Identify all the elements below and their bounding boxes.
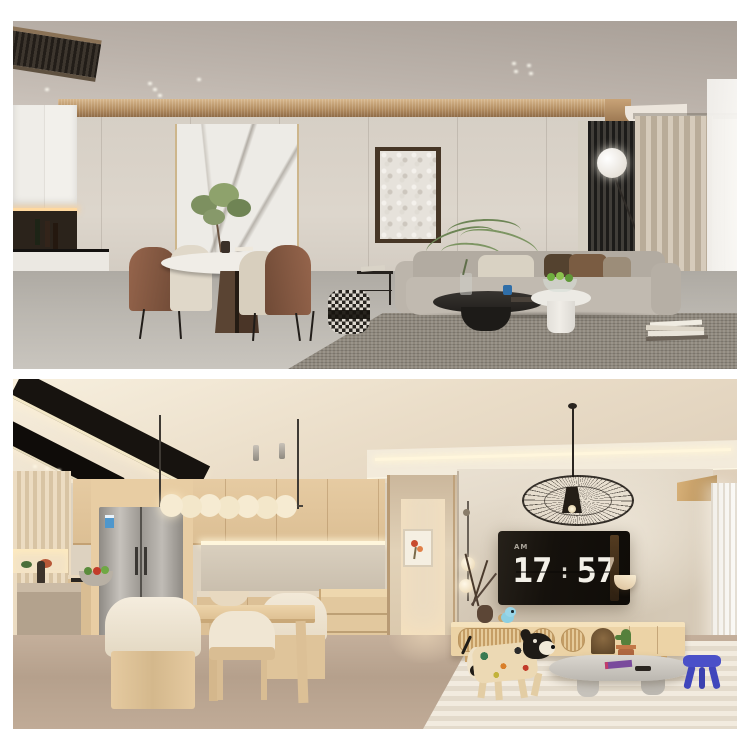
glass-vase <box>460 273 472 295</box>
hallway-art <box>403 529 433 567</box>
mini-downlight <box>253 445 259 461</box>
mini-downlight <box>279 443 285 459</box>
stool-leg <box>708 665 721 690</box>
toy-dog <box>461 631 563 701</box>
blue-cup <box>503 285 512 295</box>
wood-cornice <box>58 99 608 117</box>
console-door-seam <box>657 626 658 654</box>
veggies <box>84 567 92 575</box>
table-books <box>235 247 253 252</box>
dog-eye <box>533 639 537 643</box>
dog-nose <box>551 645 555 649</box>
pendant-cord <box>159 415 161 507</box>
houndstooth-pouf <box>328 290 370 334</box>
coffee-table-top <box>549 655 689 681</box>
energy-label <box>105 515 114 528</box>
pendant-rod <box>163 505 303 507</box>
fruit-green <box>547 273 555 281</box>
vertigo-cord <box>572 407 574 477</box>
stool-seat <box>683 655 721 667</box>
upper-cabinet <box>13 105 77 209</box>
side-table-white-column <box>547 301 575 333</box>
fridge-handle <box>144 547 147 575</box>
family-room-photo: AM 17:57 <box>13 379 737 729</box>
chair-leg-wood <box>261 660 267 700</box>
tv-screen-reflection <box>610 535 619 601</box>
recessed-lights <box>13 379 17 382</box>
chair-leg-wood <box>217 660 223 700</box>
wine-bottles <box>35 219 40 245</box>
branch-arrangement <box>443 551 503 623</box>
floor-lamp-globe <box>597 148 627 178</box>
vertigo-canopy <box>568 403 577 409</box>
table-sculpture <box>221 241 230 253</box>
stool-leg <box>699 667 705 689</box>
pilaster <box>578 121 588 267</box>
dining-chair-mid-arm <box>209 647 275 660</box>
tree-foliage <box>227 199 251 217</box>
dining-chair-near-base <box>111 651 195 709</box>
fridge-handle <box>135 547 138 575</box>
shelf-bowl <box>21 561 32 568</box>
side-table-leg <box>389 273 391 305</box>
sofa-shadow <box>405 311 671 320</box>
ceramic-vase <box>477 605 493 623</box>
book-stack <box>646 321 708 341</box>
sofa-arm-right <box>651 263 681 315</box>
living-dining-photo <box>13 21 737 369</box>
tv: AM 17:57 <box>498 531 630 605</box>
pendant-cord <box>297 419 299 509</box>
figurine-eye <box>511 610 514 613</box>
wall-lamp-knob <box>463 509 470 516</box>
tv-clock-meridiem: AM <box>514 543 528 551</box>
recessed-lights <box>13 21 17 24</box>
drawer-line <box>321 631 389 633</box>
stool-leg <box>683 665 696 690</box>
pouf-band <box>328 310 370 319</box>
dining-chair-back-right <box>265 245 311 315</box>
interior-collage: { "canvas": { "background": "#ffffff" },… <box>0 0 750 750</box>
sunglasses <box>635 666 651 671</box>
island-grinder <box>37 561 45 585</box>
rattan-circle <box>561 628 585 652</box>
hallway-end-wall <box>401 499 445 649</box>
coffee-table-organic <box>549 655 689 701</box>
vertigo-bulb <box>568 505 576 513</box>
slat-accent-panel <box>588 121 638 267</box>
tv-flip-split-line <box>516 571 614 573</box>
art-flower <box>417 546 423 552</box>
book-tray <box>646 335 708 341</box>
kids-stool <box>683 655 725 691</box>
pendant-globes <box>160 494 183 517</box>
toy-figurine <box>498 607 516 623</box>
dining-chair-near <box>105 597 201 657</box>
tree-foliage <box>203 209 225 225</box>
art-stem <box>413 547 416 559</box>
table-book <box>511 297 533 302</box>
backsplash <box>201 545 385 593</box>
drawer-line <box>321 613 389 615</box>
bar-niche <box>13 211 77 249</box>
